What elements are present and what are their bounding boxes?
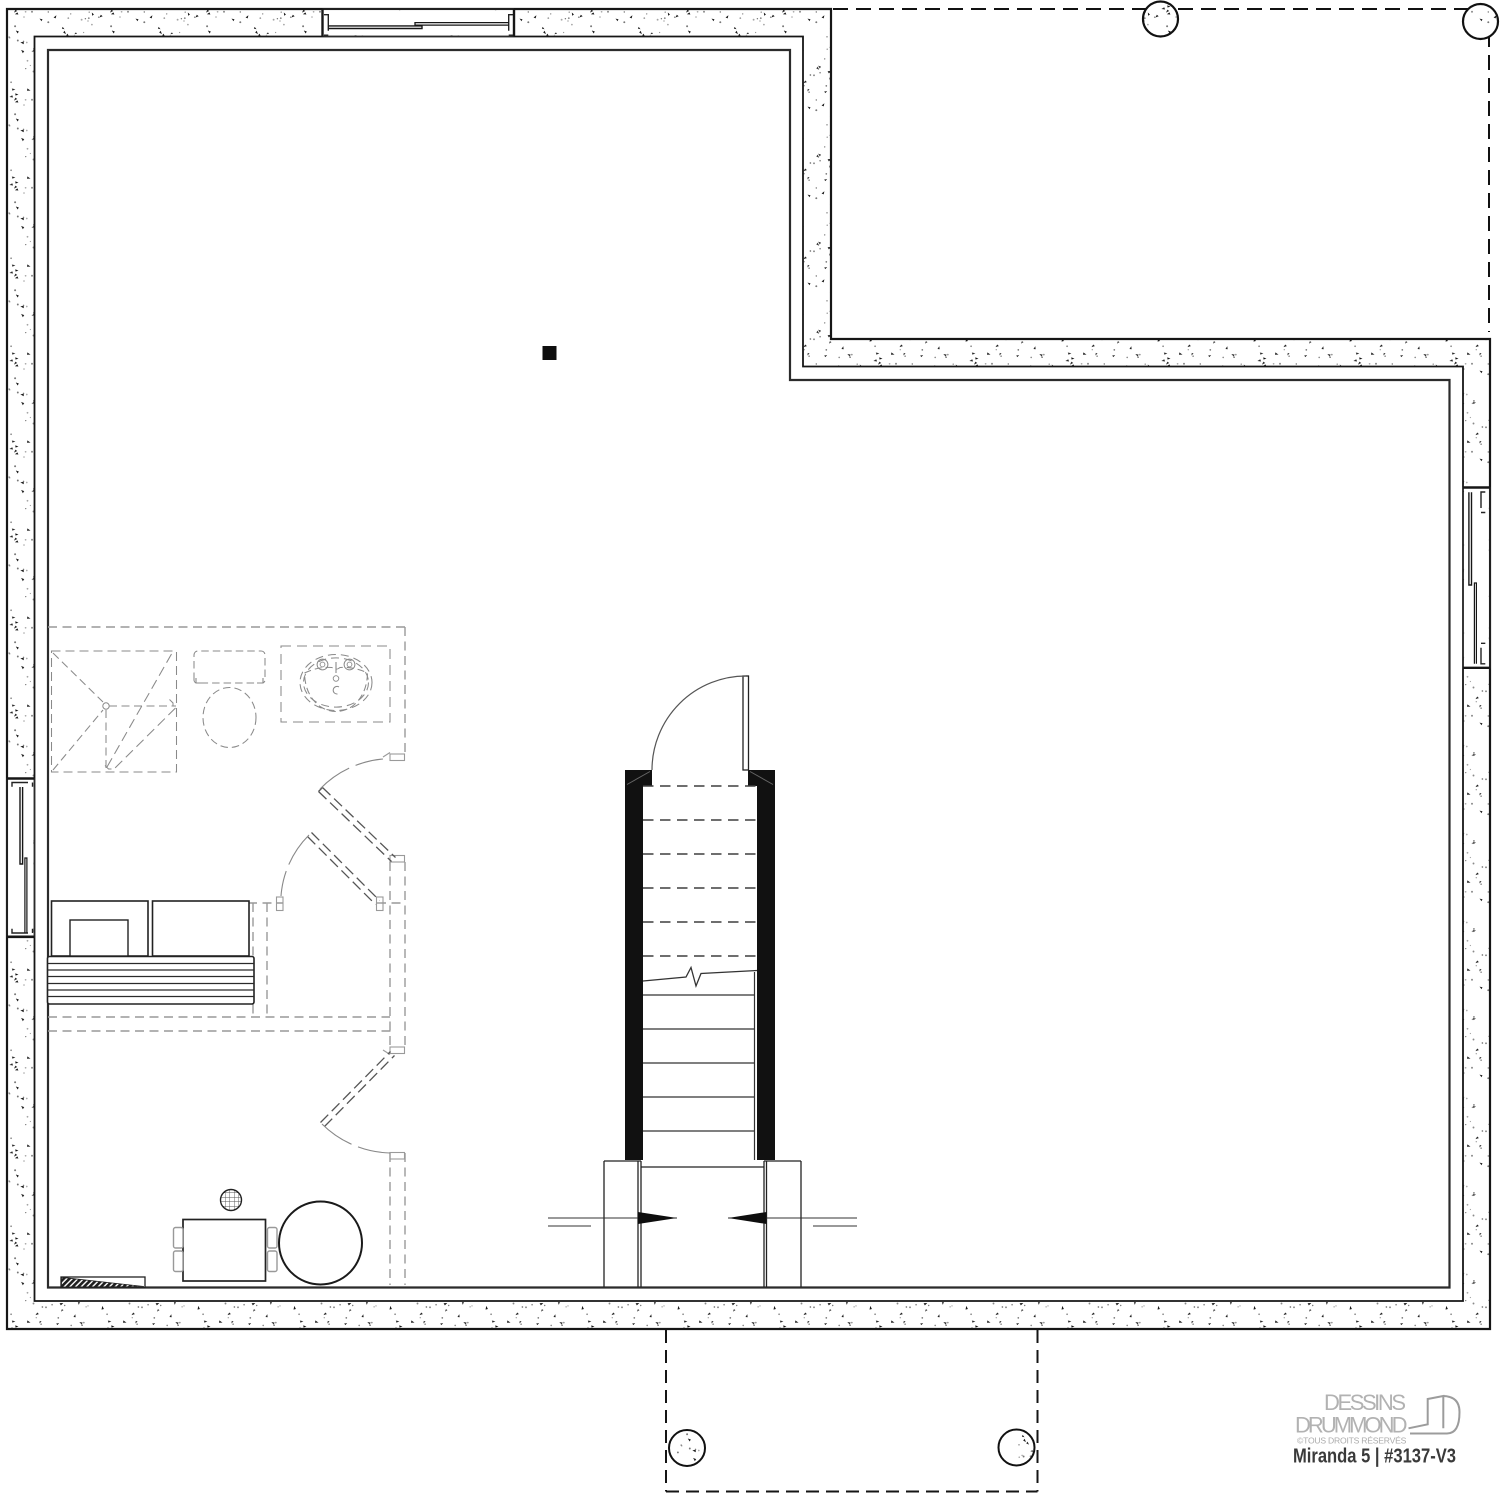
svg-text:DRUMMOND: DRUMMOND xyxy=(1295,1413,1408,1438)
svg-text:DESSINS: DESSINS xyxy=(1324,1390,1408,1415)
svg-text:Miranda 5 | #3137-V3: Miranda 5 | #3137-V3 xyxy=(1293,1445,1456,1468)
